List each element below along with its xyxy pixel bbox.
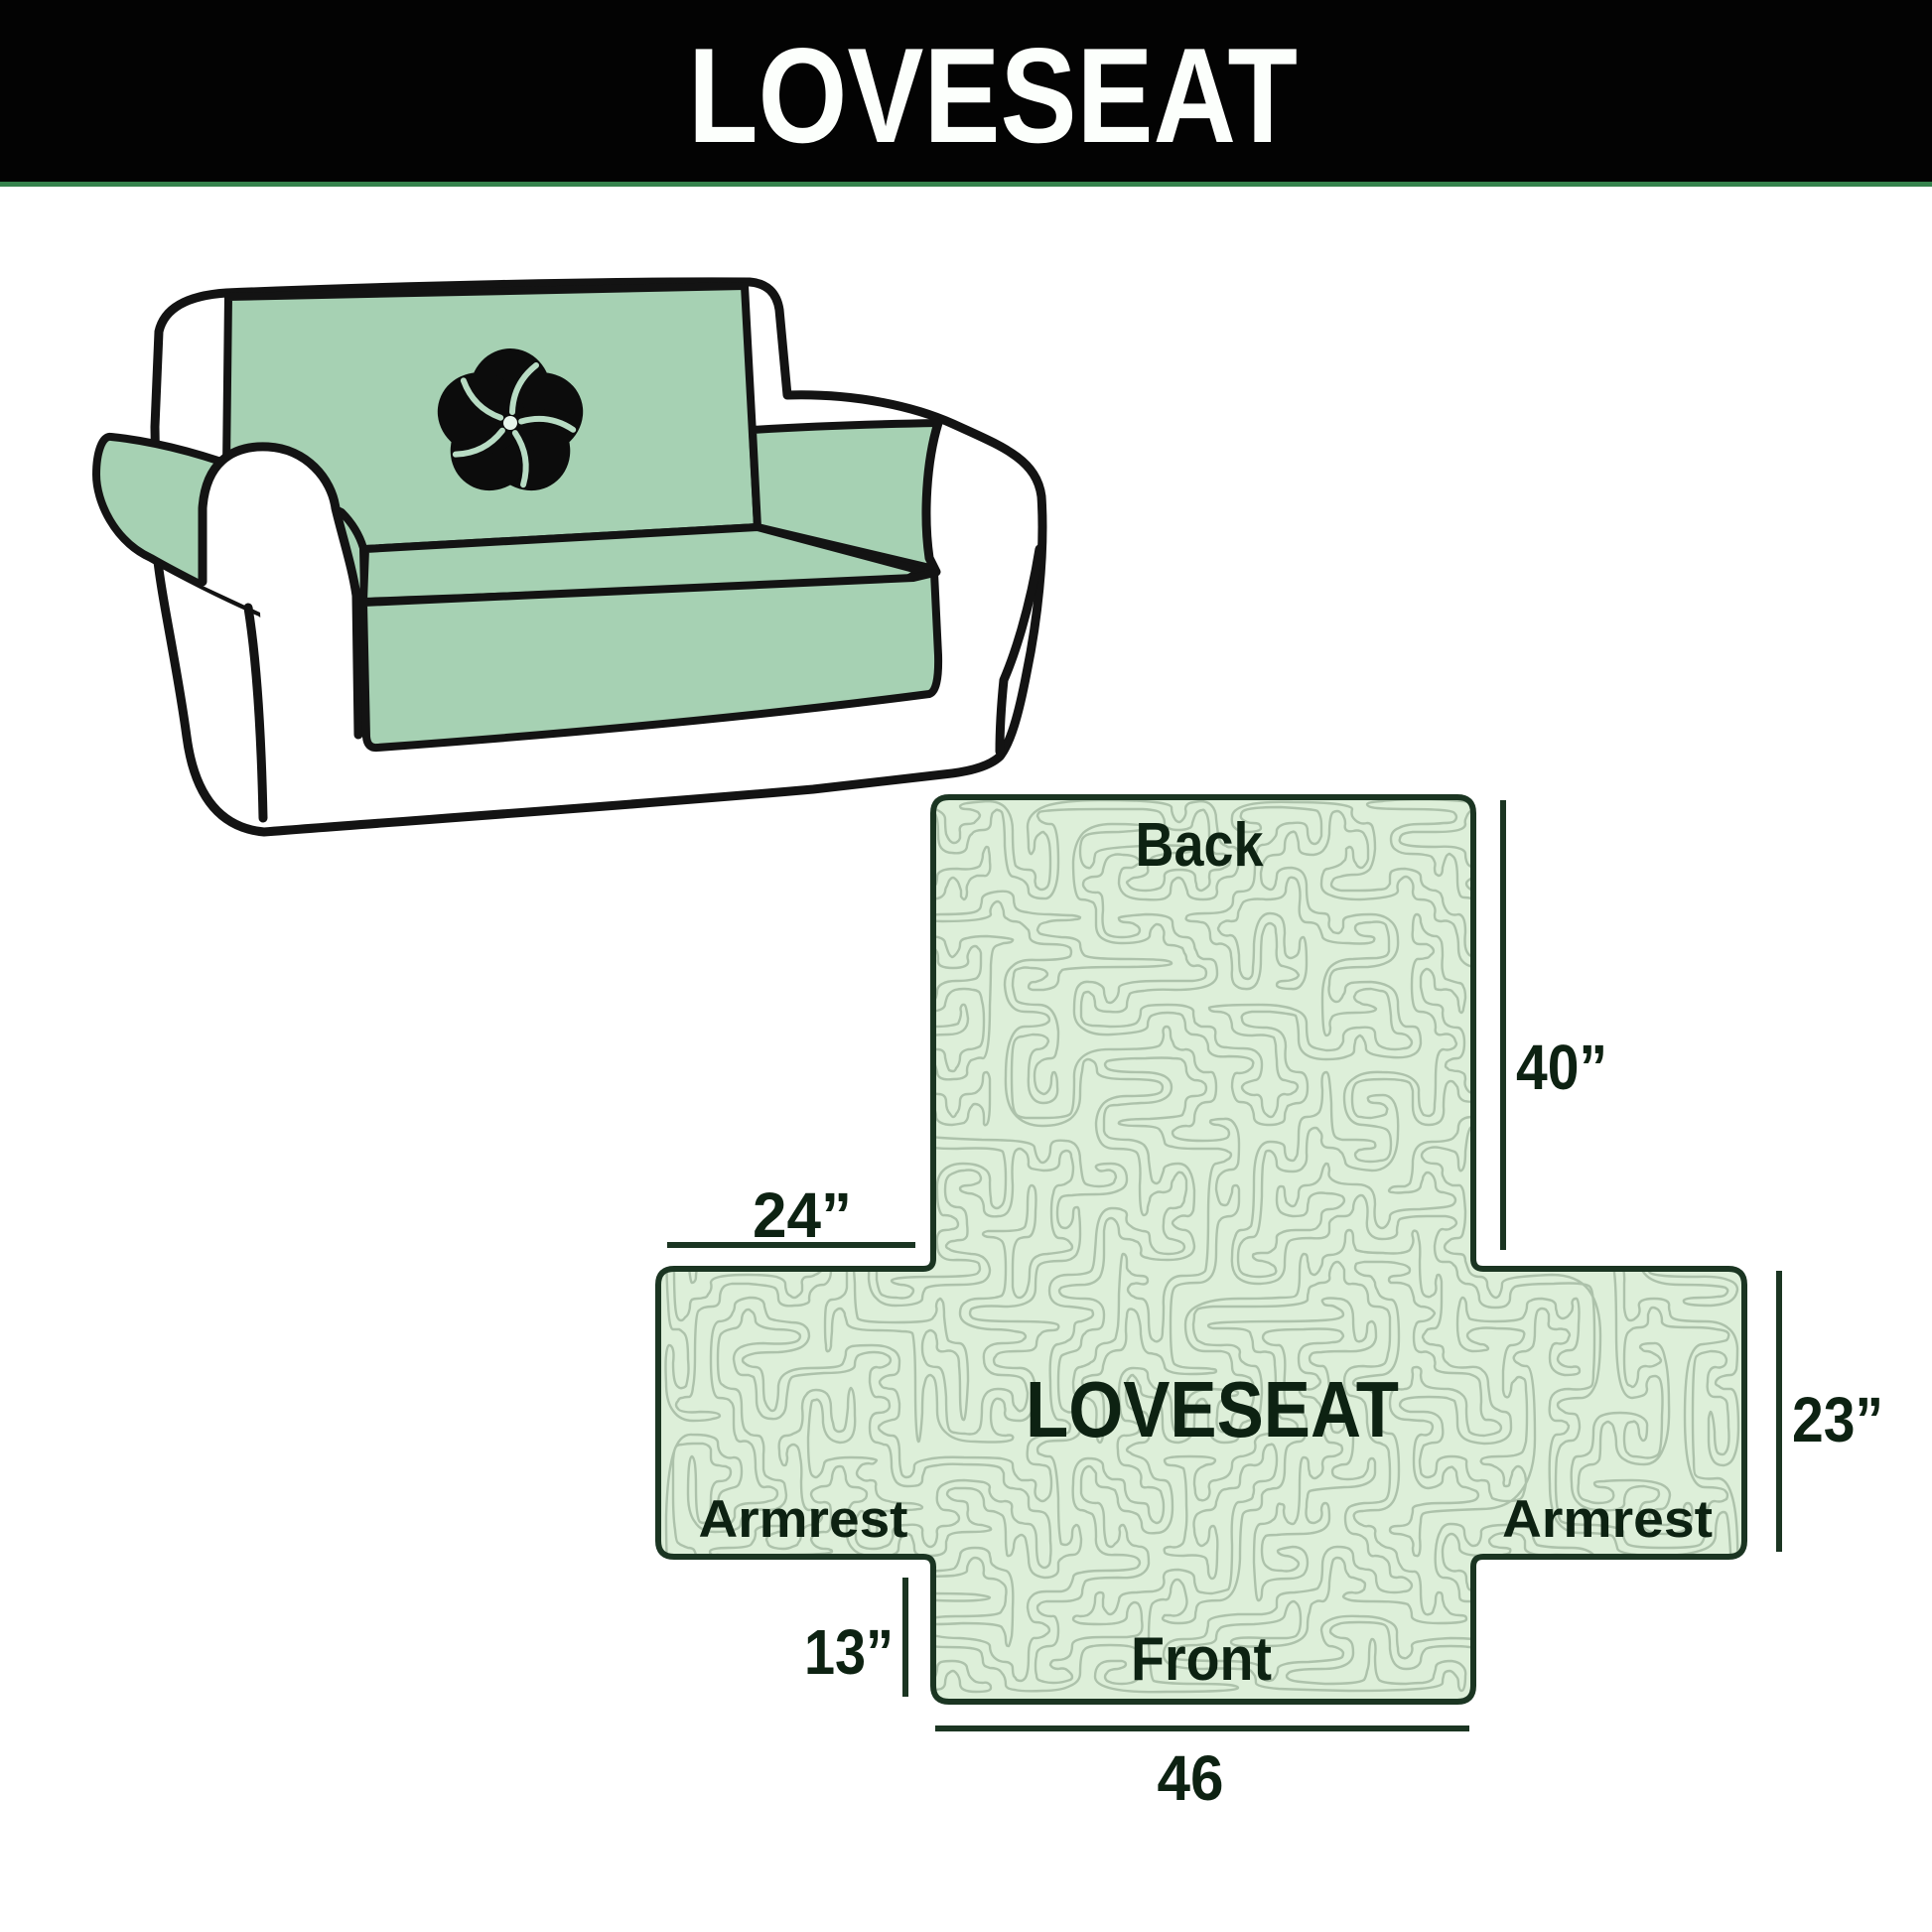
- svg-text:13”: 13”: [804, 1616, 894, 1688]
- svg-text:LOVESEAT: LOVESEAT: [688, 20, 1298, 171]
- svg-text:46: 46: [1158, 1742, 1224, 1814]
- svg-text:Armrest: Armrest: [699, 1490, 908, 1549]
- svg-text:40”: 40”: [1516, 1032, 1607, 1103]
- svg-text:24”: 24”: [753, 1179, 852, 1251]
- svg-text:Front: Front: [1131, 1625, 1272, 1694]
- svg-text:LOVESEAT: LOVESEAT: [1026, 1365, 1399, 1453]
- svg-text:Armrest: Armrest: [1502, 1490, 1713, 1549]
- svg-text:Back: Back: [1136, 811, 1264, 880]
- svg-text:23”: 23”: [1792, 1384, 1883, 1455]
